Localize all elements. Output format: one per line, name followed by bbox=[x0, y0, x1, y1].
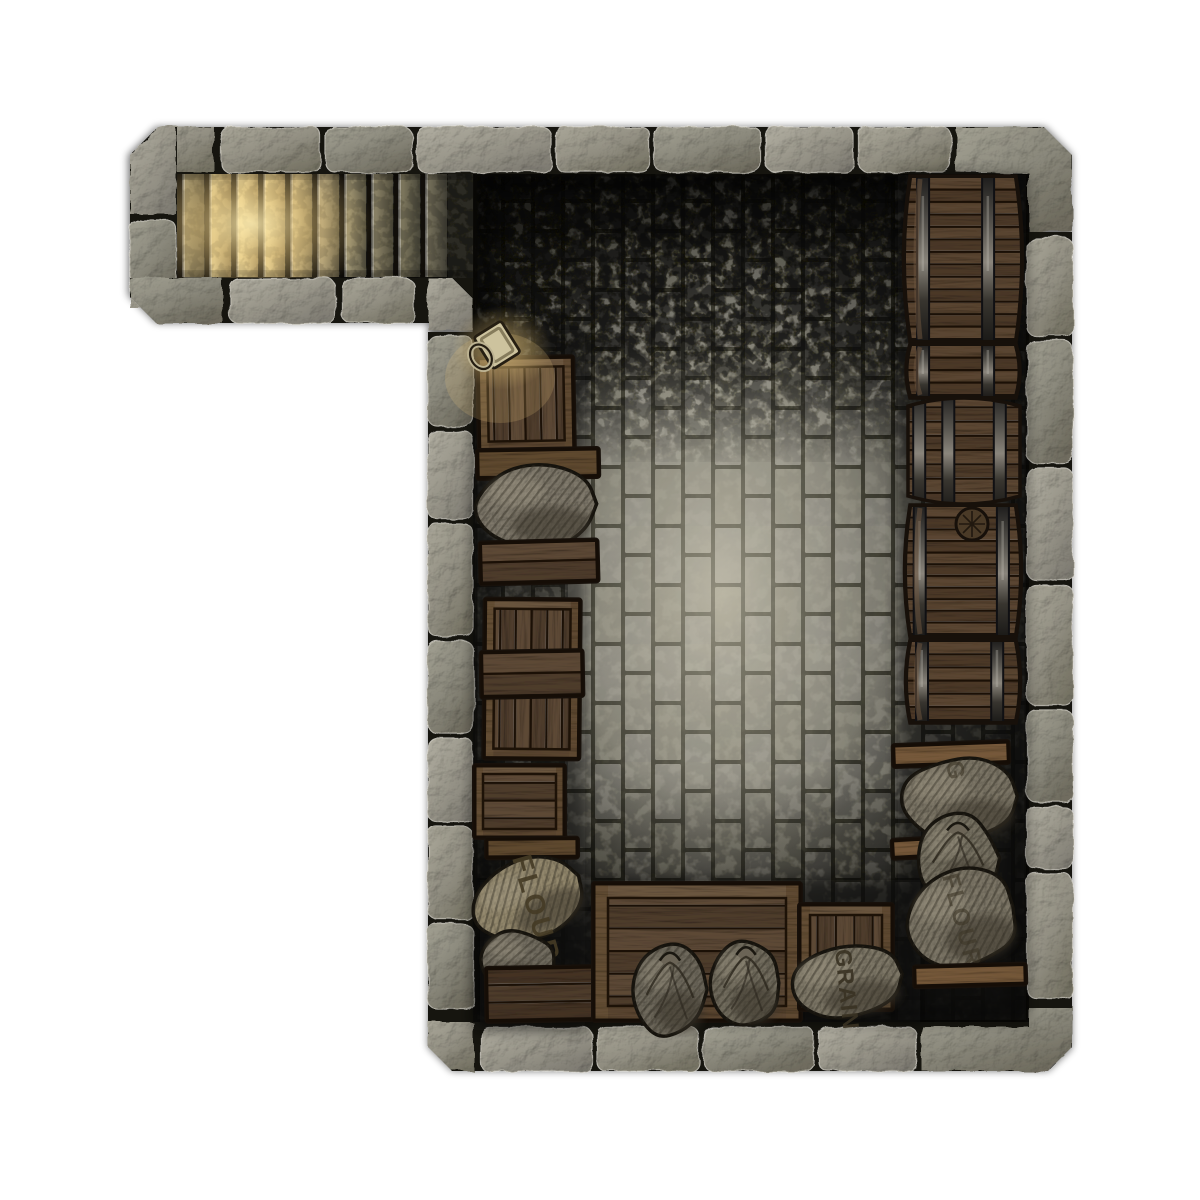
svg-text:G: G bbox=[940, 758, 970, 784]
